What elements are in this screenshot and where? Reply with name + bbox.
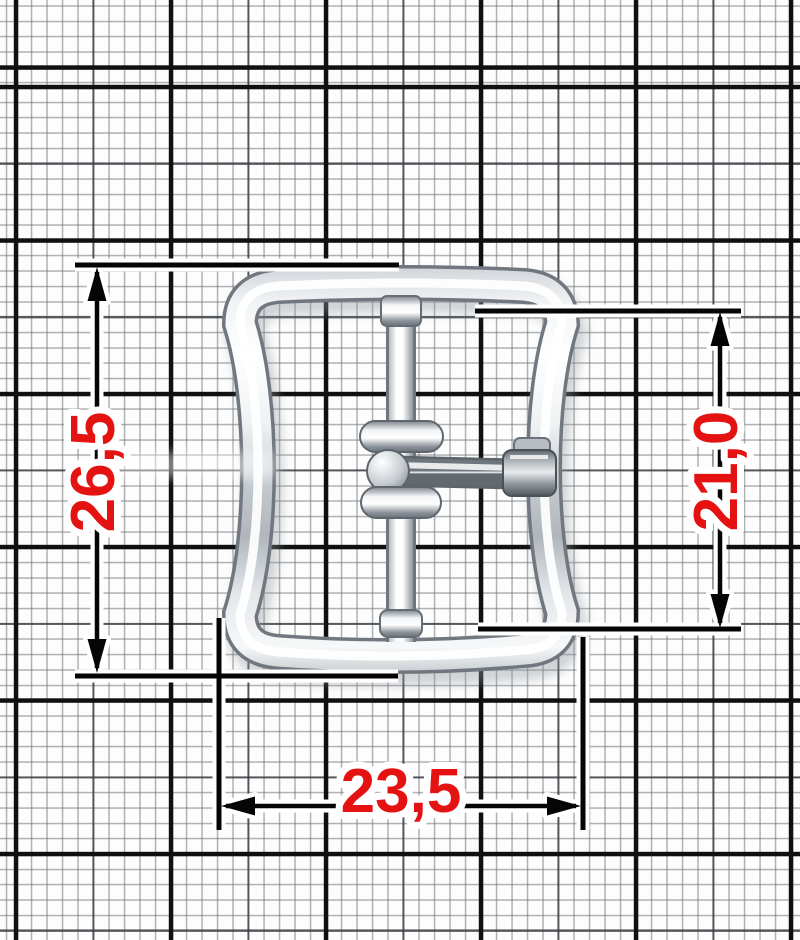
dimension-annotations: 26,5 21,0 23,5 bbox=[0, 0, 800, 940]
dimension-label-width-bottom: 23,5 bbox=[341, 757, 462, 826]
annotation-halo bbox=[75, 265, 741, 830]
dimension-label-height-inner: 21,0 bbox=[682, 411, 751, 532]
dimension-label-height-outer: 26,5 bbox=[59, 412, 128, 533]
dimension-photo-stage: 26,5 21,0 23,5 bbox=[0, 0, 800, 940]
annotation-lines bbox=[75, 265, 741, 830]
